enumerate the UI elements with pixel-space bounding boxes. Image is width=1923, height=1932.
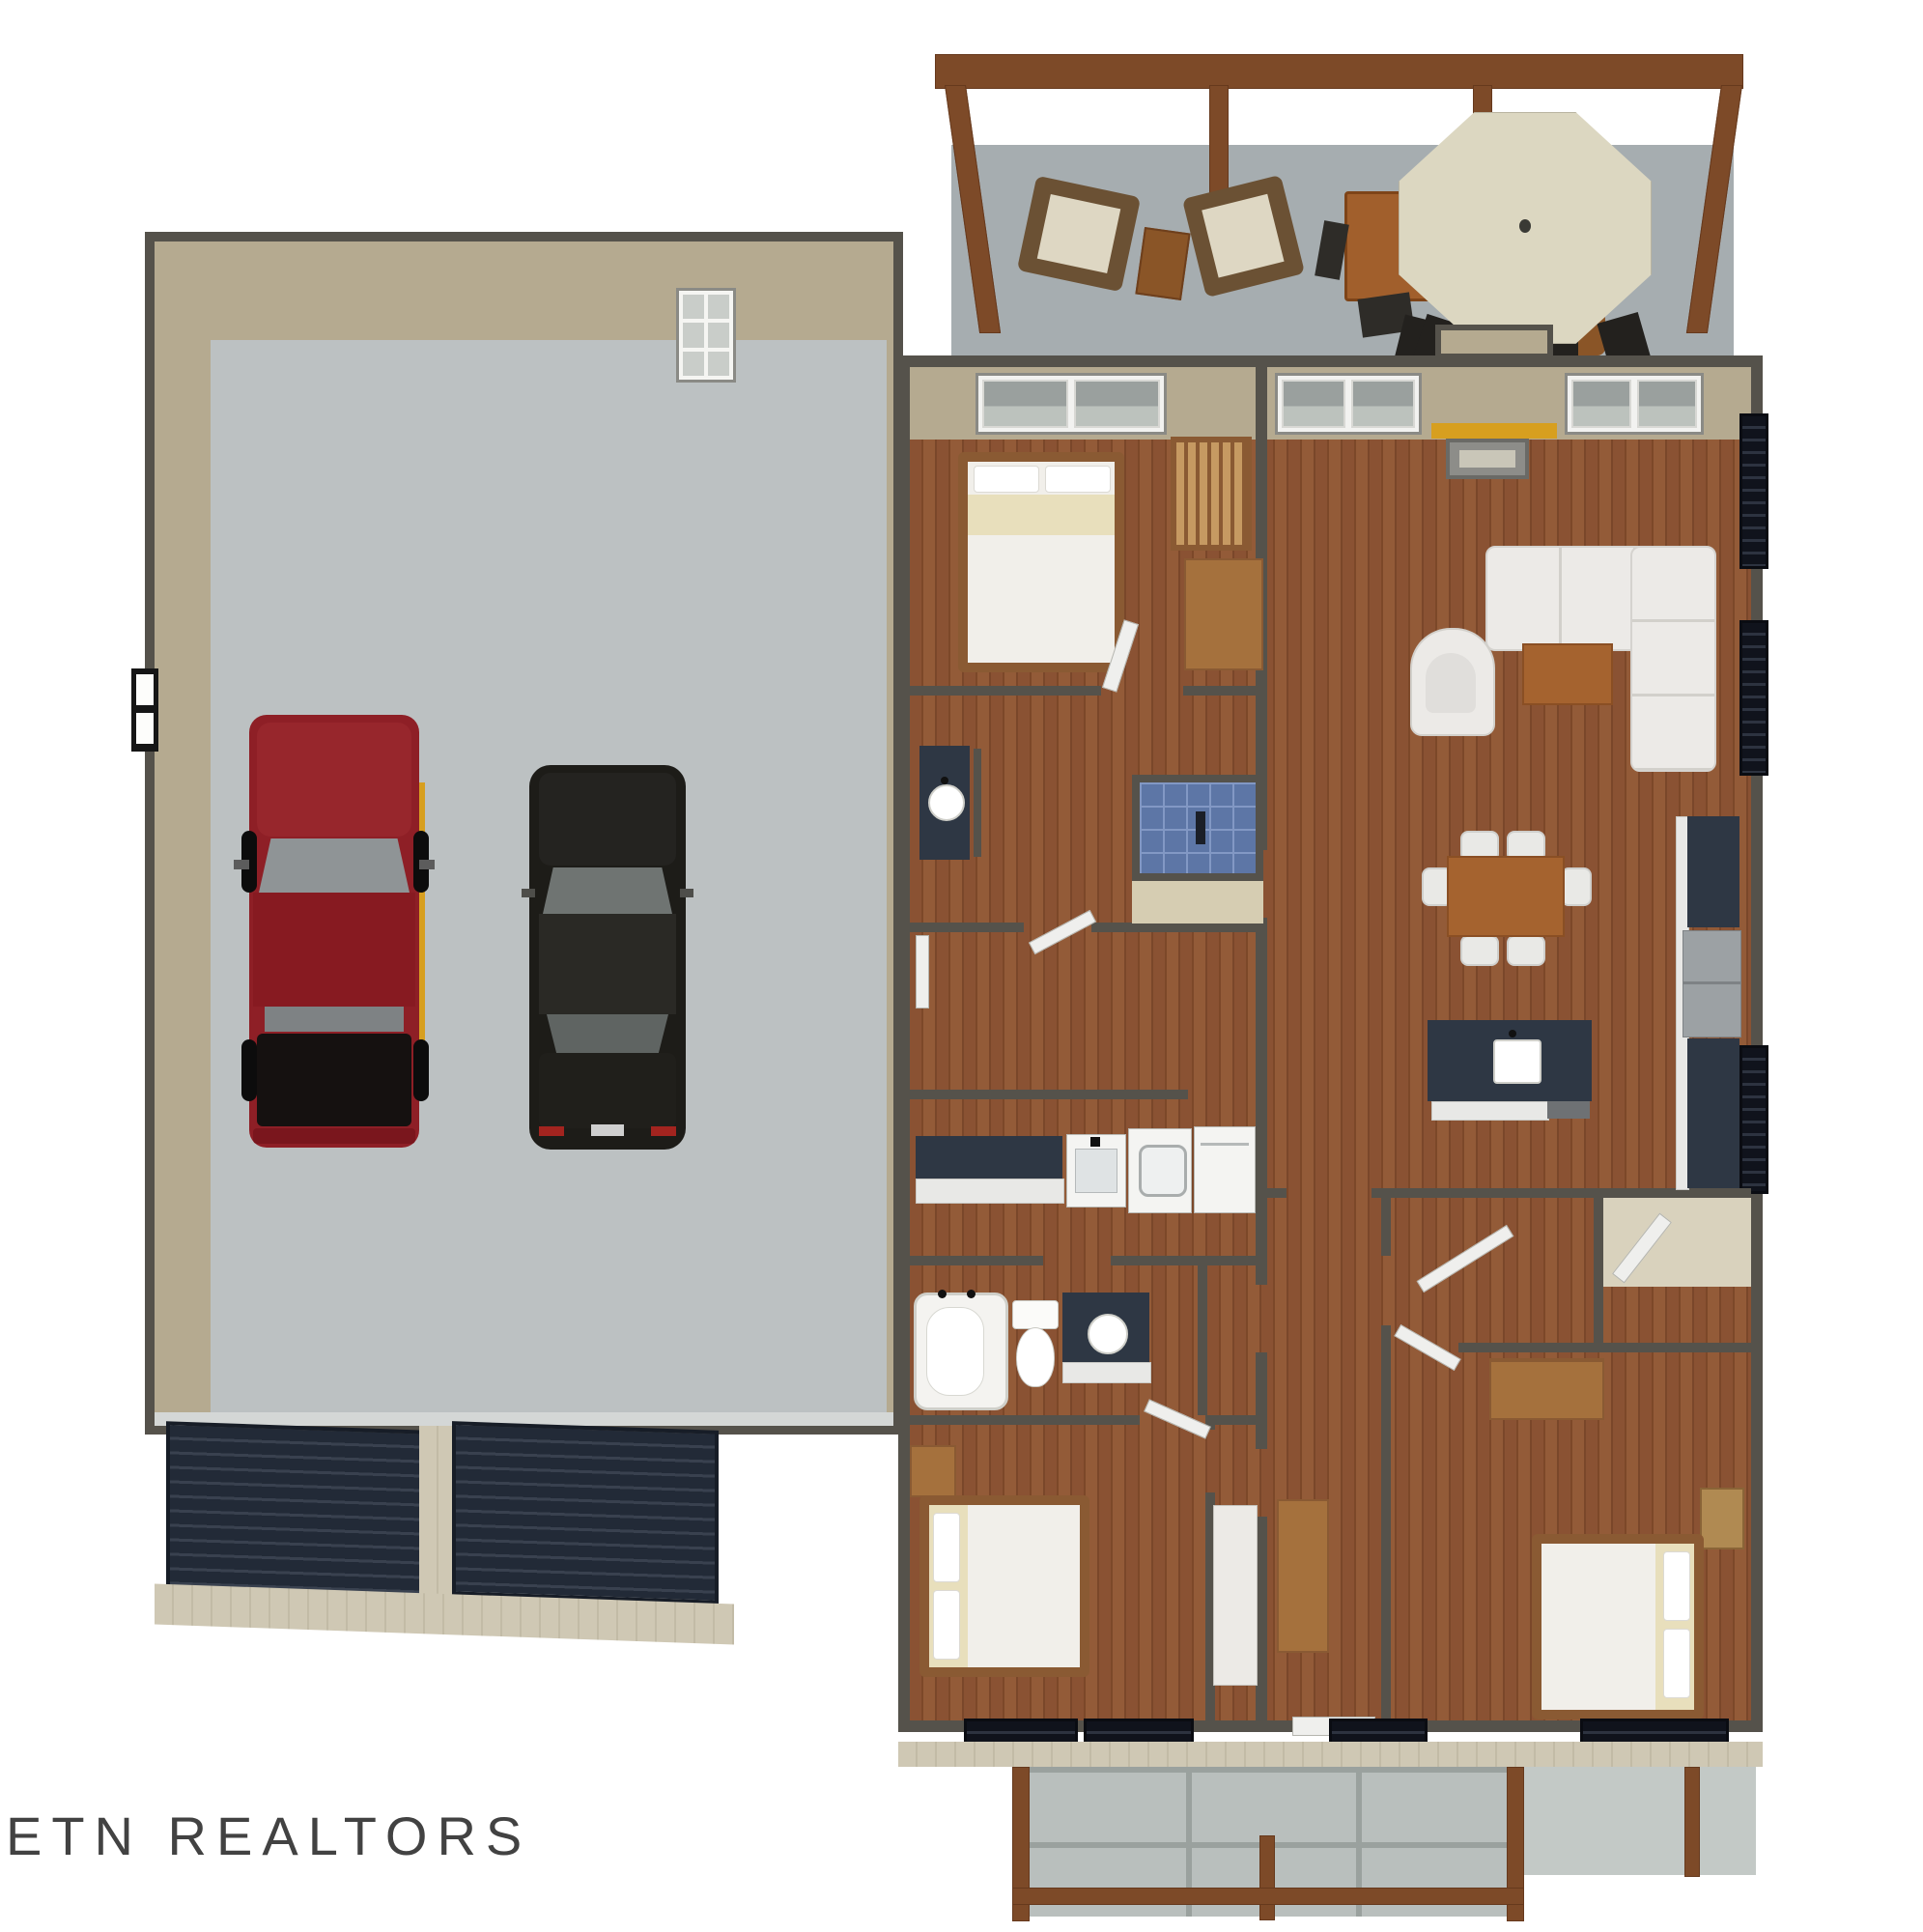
wall-laundry-south xyxy=(910,1256,1043,1265)
patio-umbrella xyxy=(1399,112,1652,344)
pickup-truck xyxy=(243,715,425,1148)
fireplace-mantel xyxy=(1431,423,1557,439)
car-taillight xyxy=(539,1126,564,1136)
dining-table xyxy=(1447,856,1565,937)
bed-pillow xyxy=(1045,466,1111,493)
truck-wheel xyxy=(413,1039,429,1101)
truck-windshield xyxy=(259,838,410,893)
wall-center-vertical xyxy=(1256,1352,1267,1449)
fridge-door-split xyxy=(1683,981,1740,984)
door-pane xyxy=(708,352,729,376)
car-trunk xyxy=(539,1053,676,1128)
car-license-plate xyxy=(591,1124,624,1136)
toilet-tank xyxy=(1012,1300,1059,1329)
door-pane xyxy=(683,352,704,376)
wall-hall-east xyxy=(1381,1188,1391,1256)
dryer-lid-line xyxy=(1201,1143,1249,1146)
bed-1 xyxy=(958,452,1124,672)
shower-fixture xyxy=(1196,811,1205,844)
porch-walkway xyxy=(1518,1767,1756,1875)
floorplan-render: ETN REALTORS xyxy=(0,0,1923,1932)
car-rear-window xyxy=(547,1014,668,1053)
window-pane xyxy=(136,713,154,744)
bedroom1-window xyxy=(976,373,1167,435)
bed-pillow xyxy=(1663,1551,1690,1621)
door-pane xyxy=(708,323,729,347)
wall-center-vertical xyxy=(1256,918,1267,1285)
porch-railing xyxy=(1012,1888,1524,1905)
door-pane xyxy=(683,295,704,319)
vanity-faucet xyxy=(941,777,948,784)
bathtub xyxy=(914,1293,1008,1410)
garage-back-door xyxy=(676,288,736,383)
window-pane xyxy=(1074,380,1160,428)
east-window-2 xyxy=(1739,620,1768,776)
sink-faucet xyxy=(1090,1137,1100,1147)
wall-kitchen-south xyxy=(1372,1188,1751,1198)
nightstand-bedroom3 xyxy=(1700,1488,1744,1549)
wall-bath1-south xyxy=(910,923,1024,932)
truck-roof xyxy=(253,893,415,1007)
bed-pillow xyxy=(974,466,1039,493)
bed-throw xyxy=(968,495,1115,535)
east-window-1 xyxy=(1739,413,1768,569)
wall-bedroom3-north xyxy=(1458,1343,1751,1352)
bed-3 xyxy=(1532,1534,1704,1719)
island-dishwasher xyxy=(1547,1101,1590,1119)
bath2-vanity xyxy=(1062,1293,1149,1381)
wall-vanity-nook xyxy=(974,749,981,857)
bath1-tile-floor xyxy=(1132,881,1263,923)
truck-rear-window xyxy=(265,1007,404,1032)
porch-post-center xyxy=(1259,1835,1275,1920)
wall-bath1-south xyxy=(1091,923,1267,932)
truck-trim xyxy=(419,782,425,1063)
foyer-cabinet xyxy=(1277,1499,1329,1653)
wall-closet1-south xyxy=(910,1090,1188,1099)
chair-seat xyxy=(1426,653,1476,713)
kitchen-island xyxy=(1428,1020,1592,1101)
door-pane xyxy=(683,323,704,347)
toilet-bowl xyxy=(1016,1327,1055,1387)
garage-door-2 xyxy=(452,1421,719,1605)
nightstand-bedroom2 xyxy=(910,1445,956,1497)
kitchen-counter-south xyxy=(1687,1038,1739,1188)
umbrella-center-finial xyxy=(1519,219,1531,233)
wall-kitchen-south xyxy=(1267,1188,1287,1198)
fireplace-chimney xyxy=(1435,325,1553,359)
closet2-shelf xyxy=(1213,1505,1258,1686)
window-pane xyxy=(1571,380,1631,428)
window-pane xyxy=(1282,380,1345,428)
window-pane xyxy=(136,674,154,705)
east-window-3 xyxy=(1739,1045,1768,1194)
firebox-inner xyxy=(1459,450,1515,468)
deck-door-window xyxy=(1565,373,1704,435)
island-base-cabinets xyxy=(1431,1101,1549,1121)
kitchen-counter-north xyxy=(1687,816,1739,927)
garage-door-1 xyxy=(166,1421,427,1604)
car-mirror xyxy=(680,889,693,897)
dining-chair xyxy=(1561,867,1592,906)
wall-bath2-south xyxy=(1207,1415,1267,1425)
dresser-bedroom3 xyxy=(1489,1358,1604,1420)
wall-bath2-east xyxy=(1198,1256,1207,1415)
tub-faucet xyxy=(938,1290,947,1298)
dining-chair xyxy=(1507,935,1545,966)
bed-pillow xyxy=(933,1513,960,1582)
black-sedan xyxy=(529,765,686,1150)
pergola-beam xyxy=(935,54,1743,89)
accent-tub-chair xyxy=(1410,628,1495,736)
truck-tailgate xyxy=(253,1128,415,1144)
truck-bed xyxy=(257,1034,411,1126)
sink-basin xyxy=(1075,1149,1117,1193)
door-pane xyxy=(708,295,729,319)
laundry-counter xyxy=(916,1136,1062,1179)
armchair-cushion xyxy=(1202,194,1284,278)
garage-side-window xyxy=(131,668,158,752)
coffee-table xyxy=(1522,643,1613,705)
window-pane xyxy=(1351,380,1415,428)
vanity-sink xyxy=(1088,1314,1128,1354)
island-faucet xyxy=(1509,1030,1516,1037)
island-sink xyxy=(1493,1039,1541,1084)
washer-door xyxy=(1139,1145,1187,1197)
deck-side-table xyxy=(1135,227,1190,300)
closet1-door xyxy=(916,935,929,1009)
fireplace-firebox xyxy=(1446,439,1529,479)
truck-mirror xyxy=(419,860,435,869)
watermark: ETN REALTORS xyxy=(6,1804,531,1867)
truck-wheel xyxy=(241,1039,257,1101)
truck-hood xyxy=(257,723,411,837)
wall-closetA-east xyxy=(1594,1198,1603,1343)
tub-faucet xyxy=(967,1290,976,1298)
refrigerator xyxy=(1683,930,1741,1037)
bed-pillow xyxy=(1663,1629,1690,1698)
house-siding-south xyxy=(898,1742,1763,1767)
armchair-cushion xyxy=(1037,194,1121,273)
bed-pillow xyxy=(933,1590,960,1660)
vanity-sink xyxy=(928,784,965,821)
bed-2 xyxy=(919,1495,1089,1677)
watermark-text: ETN REALTORS xyxy=(6,1805,531,1866)
car-mirror xyxy=(522,889,535,897)
toilet xyxy=(1012,1300,1057,1389)
shower xyxy=(1132,775,1263,881)
tub-basin xyxy=(926,1307,984,1396)
washer xyxy=(1128,1128,1192,1213)
wall-bedroom1-south xyxy=(910,686,1101,696)
dryer xyxy=(1194,1126,1256,1213)
porch-post-far-right xyxy=(1684,1767,1700,1877)
wall-hall-east xyxy=(1381,1325,1391,1732)
dining-chair xyxy=(1460,935,1499,966)
car-taillight xyxy=(651,1126,676,1136)
sectional-sofa-vertical xyxy=(1630,546,1716,772)
bath1-vanity xyxy=(919,746,970,860)
car-hood xyxy=(539,773,676,866)
crib xyxy=(1171,437,1252,551)
car-windshield xyxy=(543,867,672,914)
wall-laundry-south xyxy=(1111,1256,1267,1265)
car-roof xyxy=(539,914,676,1014)
greatroom-window xyxy=(1275,373,1422,435)
pergola-post-mid-1 xyxy=(1209,85,1229,195)
laundry-cabinets xyxy=(916,1179,1064,1204)
garage-door-divider xyxy=(419,1426,452,1596)
truck-mirror xyxy=(234,860,249,869)
changing-table xyxy=(1184,558,1263,670)
utility-sink xyxy=(1066,1134,1126,1207)
wall-bedroom1-south xyxy=(1183,686,1267,696)
window-pane xyxy=(1637,380,1697,428)
wall-bath2-south xyxy=(910,1415,1140,1425)
vanity-base xyxy=(1062,1362,1151,1383)
window-pane xyxy=(982,380,1068,428)
